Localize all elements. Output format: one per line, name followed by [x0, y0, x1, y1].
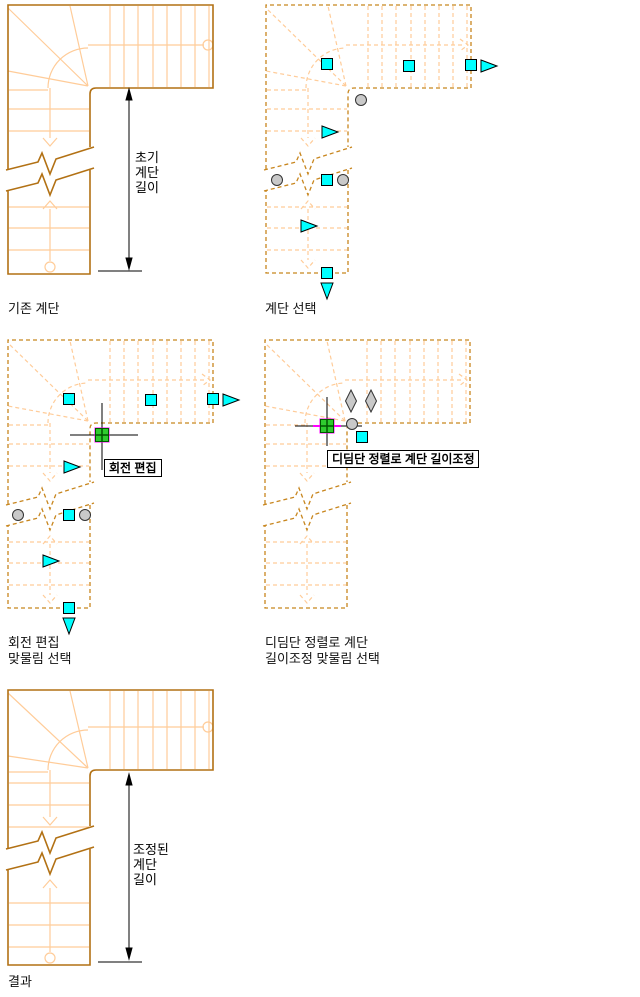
- grip-arrow-right[interactable]: [322, 126, 338, 138]
- caption-line: 계단 선택: [265, 301, 316, 317]
- stair-plan-result: [6, 690, 213, 965]
- break-line: [263, 503, 351, 530]
- break-line: [264, 147, 352, 174]
- stair-treads: [265, 341, 467, 603]
- caption-line: 디딤단 정렬로 계단: [265, 635, 380, 651]
- grips-tread-align: [320, 390, 377, 443]
- grips-rotate-edit: [13, 394, 240, 635]
- caption-existing-stair: 기존 계단: [8, 301, 59, 317]
- dimension-label-initial-length: 초기 계단 길이: [135, 150, 159, 195]
- grip-circle[interactable]: [347, 419, 358, 430]
- break-line: [6, 826, 94, 853]
- break-line: [6, 482, 94, 509]
- grip-arrow-down[interactable]: [321, 283, 333, 299]
- grip-tooltip-tread-align: 디딤단 정렬로 계단 길이조정: [327, 450, 479, 468]
- grip-square[interactable]: [64, 510, 75, 521]
- stair-plan-selected: [264, 5, 471, 273]
- caption-stair-selected: 계단 선택: [265, 301, 316, 317]
- stair-treads: [8, 691, 213, 963]
- grip-circle[interactable]: [272, 175, 283, 186]
- grip-square[interactable]: [404, 61, 415, 72]
- stair-treads: [8, 6, 213, 272]
- dimension-label-line: 조정된: [133, 842, 169, 857]
- grip-square[interactable]: [64, 394, 75, 405]
- break-line: [6, 147, 94, 174]
- grip-square[interactable]: [146, 395, 157, 406]
- grip-arrow-down[interactable]: [63, 618, 75, 634]
- caption-line: 길이조정 맞물림 선택: [265, 651, 380, 667]
- break-line: [263, 482, 351, 509]
- stair-plan-tread-align: [263, 340, 470, 608]
- grip-circle[interactable]: [80, 510, 91, 521]
- grip-arrow-right[interactable]: [43, 555, 59, 567]
- grip-square[interactable]: [322, 59, 333, 70]
- grip-square[interactable]: [64, 603, 75, 614]
- stair-diagrams-canvas: [0, 0, 640, 997]
- grip-square[interactable]: [208, 394, 219, 405]
- grip-selected[interactable]: [95, 428, 110, 443]
- grip-square[interactable]: [466, 60, 477, 71]
- grip-circle[interactable]: [13, 510, 24, 521]
- caption-result: 결과: [8, 974, 32, 990]
- grip-arrow-right[interactable]: [301, 220, 317, 232]
- stair-treads: [266, 6, 468, 268]
- caption-line: 결과: [8, 974, 32, 990]
- stair-grip-edit-illustration: 기존 계단 계단 선택 회전 편집 맞물림 선택 디딤단 정렬로 계단 길이조정…: [0, 0, 640, 997]
- dimension-label-line: 계단: [135, 165, 159, 180]
- dimension-label-line: 계단: [133, 857, 169, 872]
- grip-circle[interactable]: [338, 175, 349, 186]
- grip-selected[interactable]: [320, 419, 335, 434]
- dimension-label-adjusted-length: 조정된 계단 길이: [133, 842, 169, 887]
- grip-square[interactable]: [322, 268, 333, 279]
- grip-arrow-right[interactable]: [64, 461, 80, 473]
- caption-line: 회전 편집: [8, 635, 71, 651]
- dimension-label-line: 길이: [135, 180, 159, 195]
- grip-circle[interactable]: [356, 95, 367, 106]
- grips-stair-selected: [272, 59, 498, 300]
- grip-square[interactable]: [357, 432, 368, 443]
- grip-arrow-right[interactable]: [481, 60, 497, 72]
- grip-arrow-right[interactable]: [223, 394, 239, 406]
- dimension-label-line: 초기: [135, 150, 159, 165]
- grip-square[interactable]: [322, 175, 333, 186]
- grip-diamond[interactable]: [346, 390, 357, 412]
- caption-line: 맞물림 선택: [8, 651, 71, 667]
- caption-tread-align: 디딤단 정렬로 계단 길이조정 맞물림 선택: [265, 635, 380, 667]
- caption-rotate-edit: 회전 편집 맞물림 선택: [8, 635, 71, 667]
- caption-line: 기존 계단: [8, 301, 59, 317]
- dimension-label-line: 길이: [133, 872, 169, 887]
- grip-tooltip-rotate-edit: 회전 편집: [104, 459, 162, 477]
- stair-plan-existing: [6, 5, 213, 274]
